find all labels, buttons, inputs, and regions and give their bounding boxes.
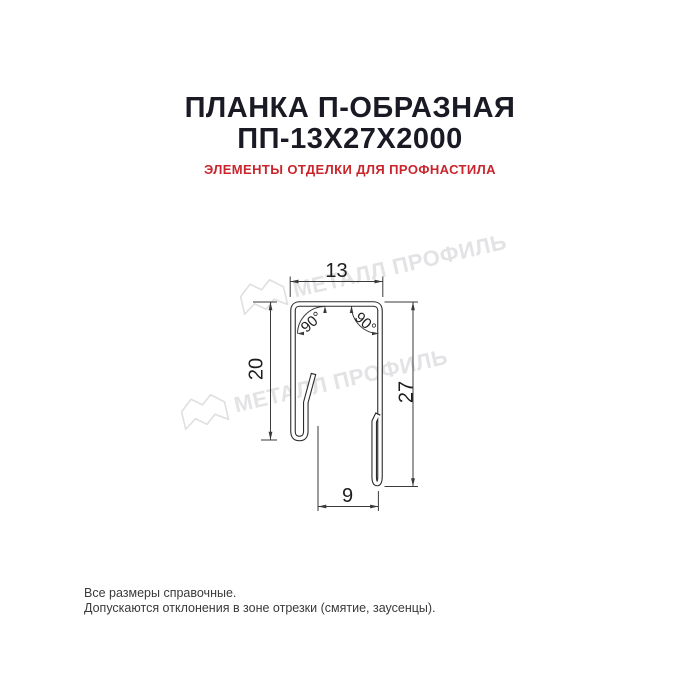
arrowhead-right-icon <box>375 280 383 284</box>
arrowhead-left-icon <box>297 332 304 336</box>
arrowhead-left-icon <box>318 505 326 509</box>
arrowhead-up-icon <box>269 302 273 310</box>
footer-note-1: Все размеры справочные. <box>84 586 436 601</box>
footer-notes: Все размеры справочные. Допускаются откл… <box>84 586 436 616</box>
dim-label-right-height: 27 <box>396 381 418 403</box>
dim-label-top-width: 13 <box>325 260 347 282</box>
angle-label-left: 90° <box>298 308 326 336</box>
arrowhead-up-icon <box>323 306 327 313</box>
arrowhead-right-icon <box>370 505 378 509</box>
arrowhead-up-icon <box>411 302 415 310</box>
arrowhead-down-icon <box>269 432 273 440</box>
dim-label-left-height: 20 <box>246 358 268 380</box>
dim-label-bottom-width: 9 <box>342 485 353 507</box>
arrowhead-down-icon <box>411 478 415 486</box>
arrowhead-up-icon <box>350 306 354 313</box>
footer-note-2: Допускаются отклонения в зоне отрезки (с… <box>84 601 436 616</box>
arrowhead-left-icon <box>290 280 298 284</box>
